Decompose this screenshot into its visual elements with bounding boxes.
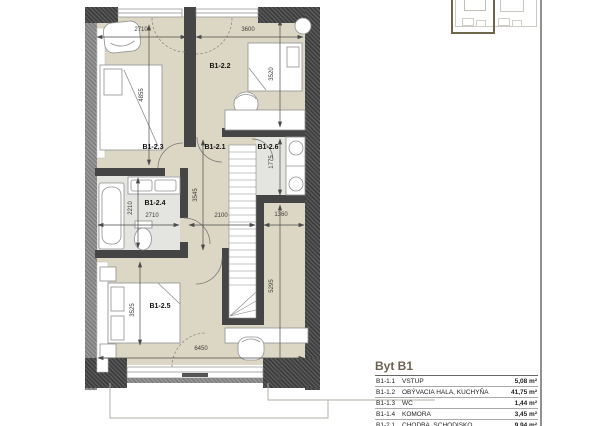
wall bbox=[95, 168, 165, 176]
room-area: 3,45 m² bbox=[497, 411, 537, 418]
room-code: B1-2.1 bbox=[376, 422, 402, 426]
room-label: B1-2.3 bbox=[136, 144, 170, 151]
room-name: OBÝVACIA HALA, KUCHYŇA bbox=[402, 389, 497, 396]
sliding-door bbox=[182, 373, 208, 377]
room-label: B1-2.2 bbox=[203, 63, 237, 70]
legend-row: B1-1.4 KOMORA 3,45 m² bbox=[375, 409, 538, 420]
wall bbox=[85, 7, 118, 23]
room-name: VSTUP bbox=[402, 378, 497, 385]
inset-room bbox=[500, 0, 524, 12]
room-code: B1-1.4 bbox=[376, 411, 402, 418]
dimension: 6450 bbox=[186, 346, 216, 352]
wall bbox=[263, 358, 320, 388]
dimension: 4855 bbox=[139, 80, 145, 110]
drawing-sheet: B1-2.2 B1-2.3 B1-2.1 B1-2.6 B1-2.4 B1-2.… bbox=[0, 0, 600, 426]
wall bbox=[256, 203, 264, 325]
dimension: 2710 bbox=[126, 27, 156, 33]
wall bbox=[222, 128, 305, 137]
room-name: KOMORA bbox=[402, 411, 497, 418]
dimension: 3520 bbox=[269, 59, 275, 89]
room-code: B1-1.1 bbox=[376, 378, 402, 385]
wall bbox=[85, 358, 127, 388]
wall bbox=[222, 318, 263, 325]
room-code: B1-1.2 bbox=[376, 389, 402, 396]
legend-title: Byt B1 bbox=[375, 359, 538, 373]
wall bbox=[248, 160, 256, 205]
dimension: 3545 bbox=[193, 180, 199, 210]
room-name: WC bbox=[402, 400, 497, 407]
dimension: 3525 bbox=[130, 295, 136, 325]
room-label: B1-2.4 bbox=[138, 200, 172, 207]
legend-row: B1-1.2 OBÝVACIA HALA, KUCHYŇA 41,75 m² bbox=[375, 387, 538, 398]
legend-row: B1-1.1 VSTUP 5,08 m² bbox=[375, 376, 538, 387]
legend-row: B1-1.3 WC 1,44 m² bbox=[375, 398, 538, 409]
dimension: 1775 bbox=[269, 147, 275, 177]
legend-table: B1-1.1 VSTUP 5,08 m² B1-1.2 OBÝVACIA HAL… bbox=[375, 375, 538, 426]
room-area: 1,44 m² bbox=[497, 400, 537, 407]
wall bbox=[95, 250, 188, 258]
room-code: B1-1.3 bbox=[376, 400, 402, 407]
room-area: 5,08 m² bbox=[497, 378, 537, 385]
dimension: 1360 bbox=[266, 212, 296, 218]
dimension: 5295 bbox=[269, 271, 275, 301]
wall bbox=[85, 7, 97, 390]
dimension: 2210 bbox=[128, 193, 134, 223]
room-label: B1-2.5 bbox=[143, 303, 177, 310]
inset-stair-mark bbox=[512, 20, 522, 27]
legend: Byt B1 B1-1.1 VSTUP 5,08 m² B1-1.2 OBÝVA… bbox=[375, 359, 538, 426]
room-area: 9,94 m² bbox=[497, 422, 537, 426]
room-label: B1-2.6 bbox=[251, 144, 285, 151]
wall bbox=[305, 7, 320, 390]
wall bbox=[180, 168, 188, 218]
dimension: 2710 bbox=[137, 213, 167, 219]
legend-row: B1-2.1 CHODBA, SCHODISKO 9,94 m² bbox=[375, 420, 538, 426]
room-area: 41,75 m² bbox=[497, 389, 537, 396]
wall bbox=[127, 378, 263, 383]
dimension: 3600 bbox=[233, 27, 263, 33]
inset-stair-mark bbox=[498, 18, 510, 26]
sheet-border bbox=[540, 0, 542, 426]
wall bbox=[222, 248, 229, 325]
room-name: CHODBA, SCHODISKO bbox=[402, 422, 497, 426]
wall bbox=[256, 195, 305, 203]
inset-highlighted-unit bbox=[451, 0, 495, 34]
room-label: B1-2.1 bbox=[198, 144, 232, 151]
wall bbox=[184, 7, 196, 147]
dimension: 2100 bbox=[206, 213, 236, 219]
